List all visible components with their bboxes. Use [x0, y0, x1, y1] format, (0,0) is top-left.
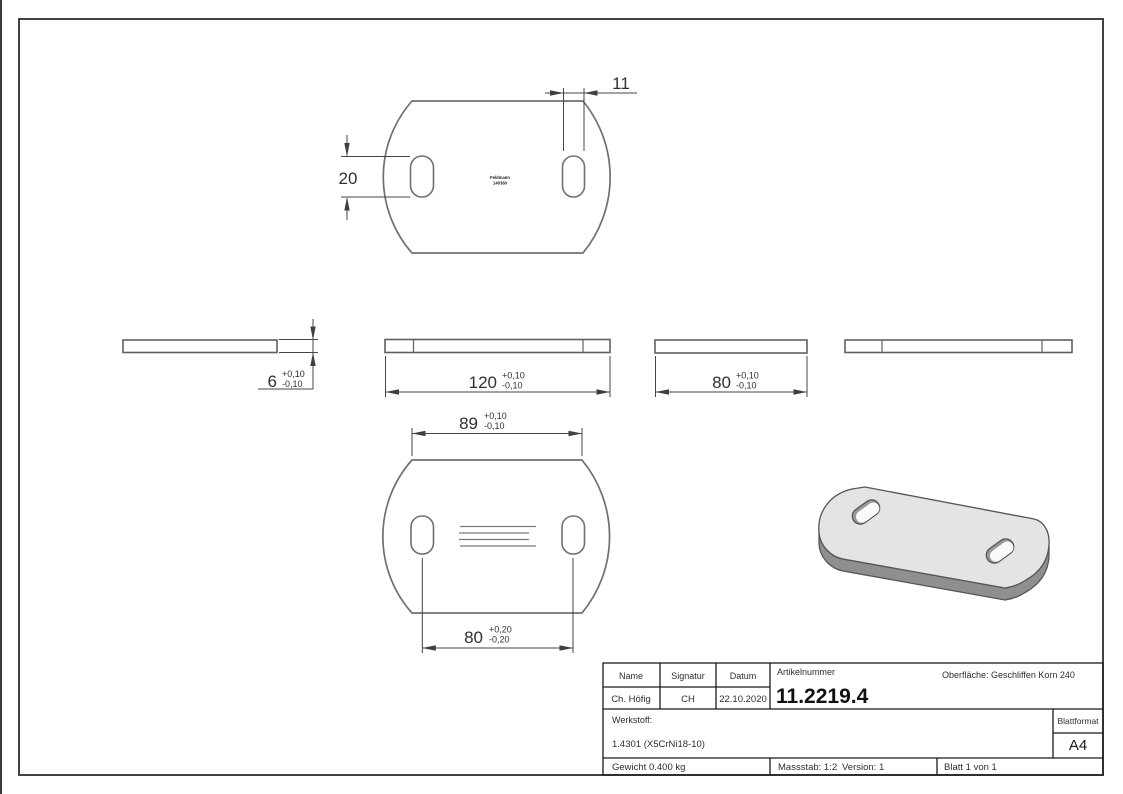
dim-tol-hole-span-plus: +0,10: [484, 411, 507, 421]
arrowhead: [597, 389, 611, 394]
drawing-sheet-page: { "sheet": { "stamp": { "line1": "Feldma…: [0, 0, 1123, 794]
dim-text-slot-height: 20: [339, 169, 358, 188]
blatt-text: Blatt 1 von 1: [944, 762, 997, 773]
dim-text-slot-width: 11: [612, 74, 630, 93]
name-label: Name: [619, 671, 643, 681]
dim-tol-thickness-minus: -0,10: [282, 379, 303, 389]
oberflaeche-text: Oberfläche: Geschliffen Korn 240: [942, 670, 1075, 680]
arrowhead: [310, 327, 315, 341]
arrowhead: [550, 90, 564, 95]
datum-label: Datum: [730, 671, 757, 681]
artikelnummer-label: Artikelnummer: [777, 667, 835, 677]
top-view-slot-left: [411, 156, 434, 197]
front-view-slot-left: [411, 516, 434, 554]
title-block-text: Name Signatur Datum Ch. Höfig CH 22.10.2…: [611, 667, 1099, 773]
massstab-text: Massstab: 1:2: [778, 762, 837, 773]
werkstoff-value: 1.4301 (X5CrNi18-10): [612, 739, 705, 750]
blattformat-label: Blattformat: [1057, 716, 1099, 726]
dim-tol-length-minus: -0,10: [502, 381, 523, 391]
arrowhead: [794, 389, 808, 394]
drawing-canvas: Feldmann 140360 11 20 6 +0,10 -0,10: [0, 0, 1123, 794]
dim-text-width: 80: [712, 373, 731, 392]
datum-value: 22.10.2020: [719, 694, 767, 705]
dim-tol-hole-span-minus: -0,10: [484, 421, 505, 431]
blattformat-value: A4: [1069, 737, 1087, 754]
arrowhead: [344, 143, 349, 157]
dimension-length: [386, 356, 611, 397]
signatur-label: Signatur: [671, 671, 705, 681]
arrowhead: [656, 389, 670, 394]
arrowhead: [344, 197, 349, 211]
dim-text-length: 120: [469, 373, 497, 392]
dimension-hole-span: [412, 428, 582, 456]
dim-tol-hole-centers-plus: +0,20: [489, 625, 512, 635]
dimension-width: [656, 356, 808, 397]
side-view-bar-3: [655, 340, 807, 353]
werkstoff-label: Werkstoff:: [612, 715, 652, 725]
arrowhead: [584, 90, 598, 95]
dim-text-thickness: 6: [268, 372, 277, 391]
dim-tol-thickness-plus: +0,10: [282, 369, 305, 379]
signatur-value: CH: [681, 694, 695, 705]
engraving-stamp-line1: Feldmann: [490, 175, 510, 180]
arrowhead: [569, 431, 583, 436]
top-view-slot-right: [563, 156, 585, 197]
gewicht-text: Gewicht 0.400 kg: [612, 762, 685, 773]
dim-tol-width-minus: -0,10: [736, 381, 757, 391]
dim-tol-hole-centers-minus: -0,20: [489, 635, 510, 645]
side-views: [123, 340, 1072, 354]
artikelnummer-value: 11.2219.4: [776, 685, 869, 708]
name-value: Ch. Höfig: [611, 694, 651, 705]
front-view-slot-right: [562, 516, 585, 554]
top-view: Feldmann 140360: [383, 101, 610, 253]
isometric-view: [819, 487, 1049, 600]
dim-text-hole-centers: 80: [464, 628, 483, 647]
dim-tol-length-plus: +0,10: [502, 371, 525, 381]
front-view: [383, 460, 610, 613]
version-text: Version: 1: [842, 762, 884, 773]
side-view-bar-4: [845, 340, 1072, 353]
arrowhead: [422, 645, 436, 650]
engraving-stamp-line2: 140360: [493, 181, 508, 186]
arrowhead: [560, 645, 574, 650]
side-view-bar-1: [123, 340, 277, 353]
arrowhead: [386, 389, 400, 394]
side-view-bar-2: [385, 340, 610, 353]
arrowhead: [412, 431, 426, 436]
arrowhead: [310, 353, 315, 367]
dim-tol-width-plus: +0,10: [736, 371, 759, 381]
dim-text-hole-span: 89: [459, 414, 478, 433]
